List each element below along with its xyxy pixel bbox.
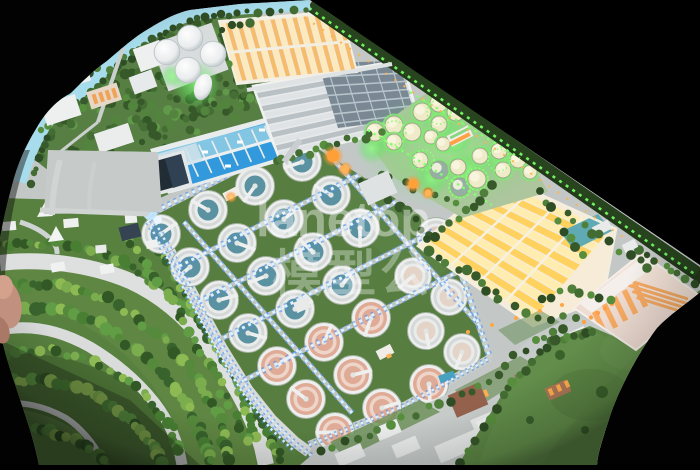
svg-text:模型公: 模型公 [272, 246, 434, 302]
svg-text:lanetop: lanetop [256, 193, 430, 247]
